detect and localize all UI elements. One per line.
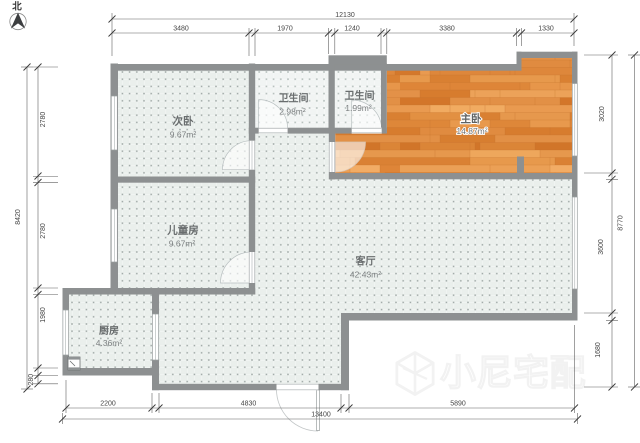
svg-text:42.43m²: 42.43m² (350, 270, 381, 280)
svg-text:小尼宅配: 小尼宅配 (440, 352, 586, 393)
svg-text:主卧: 主卧 (461, 112, 482, 125)
svg-text:客厅: 客厅 (355, 255, 376, 268)
svg-text:儿童房: 儿童房 (166, 224, 199, 237)
svg-text:北: 北 (12, 1, 22, 13)
svg-text:1330: 1330 (538, 26, 554, 33)
svg-text:次卧: 次卧 (173, 115, 194, 128)
svg-text:8770: 8770 (618, 215, 625, 231)
svg-text:厨房: 厨房 (99, 324, 119, 337)
svg-text:卫生间: 卫生间 (279, 92, 309, 105)
svg-text:9.67m²: 9.67m² (169, 239, 196, 249)
svg-text:4.36m²: 4.36m² (96, 338, 123, 348)
svg-text:2200: 2200 (100, 401, 116, 408)
svg-text:3380: 3380 (439, 26, 455, 33)
svg-text:4830: 4830 (241, 401, 257, 408)
svg-text:5890: 5890 (450, 401, 466, 408)
svg-text:2780: 2780 (40, 223, 47, 239)
svg-text:2780: 2780 (40, 112, 47, 128)
svg-text:1680: 1680 (595, 342, 602, 358)
svg-text:13400: 13400 (311, 412, 331, 419)
svg-text:14.87m²: 14.87m² (456, 126, 487, 136)
svg-text:12130: 12130 (335, 12, 355, 19)
svg-text:3600: 3600 (598, 239, 605, 255)
svg-text:1240: 1240 (344, 26, 360, 33)
svg-text:2.98m²: 2.98m² (279, 107, 306, 117)
svg-text:1970: 1970 (277, 26, 293, 33)
svg-text:3020: 3020 (599, 106, 606, 122)
svg-text:1980: 1980 (40, 307, 47, 323)
svg-text:9.67m²: 9.67m² (170, 130, 197, 140)
svg-text:卫生间: 卫生间 (345, 89, 375, 102)
svg-text:3480: 3480 (173, 26, 189, 33)
svg-text:1.99m²: 1.99m² (345, 103, 372, 113)
svg-text:280: 280 (28, 374, 35, 386)
svg-text:8420: 8420 (15, 209, 22, 225)
